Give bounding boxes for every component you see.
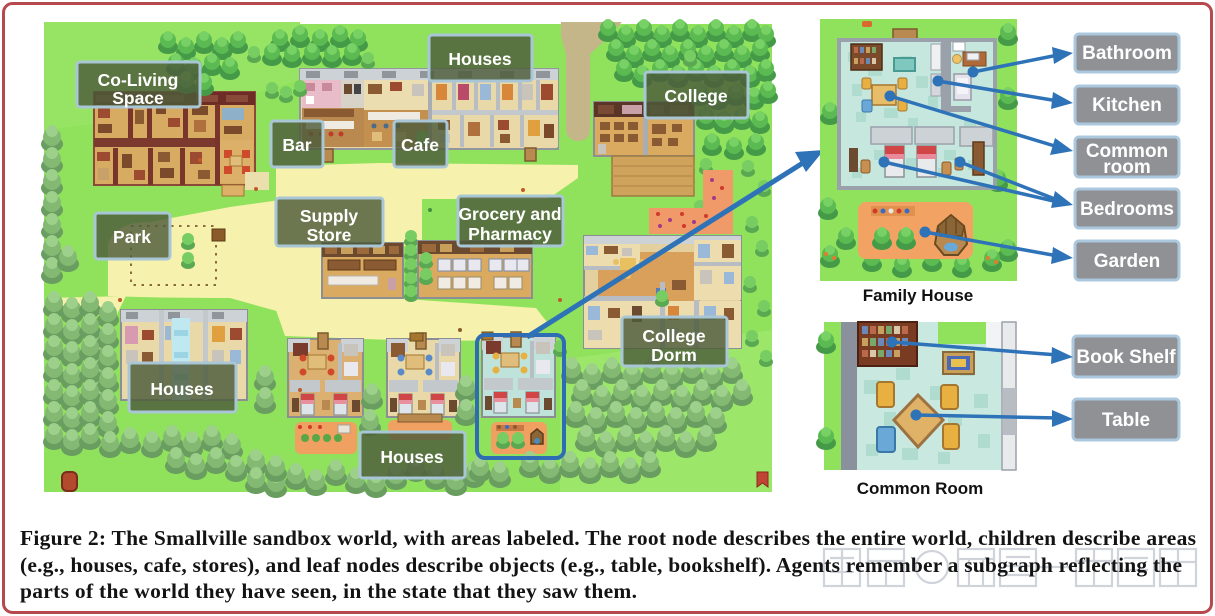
svg-text:Common Room: Common Room [857,479,984,498]
svg-text:College: College [642,326,705,346]
svg-text:parts of the world they have s: parts of the world they have seen, in th… [20,579,637,603]
svg-text:Figure 2: The Smallville sandb: Figure 2: The Smallville sandbox world, … [20,526,1196,550]
svg-text:Houses: Houses [380,447,443,467]
svg-text:Kitchen: Kitchen [1092,95,1162,116]
svg-text:Table: Table [1102,410,1150,431]
svg-text:College: College [664,86,727,106]
svg-text:Co-Living: Co-Living [98,70,179,90]
svg-text:Supply: Supply [300,206,359,226]
svg-text:Park: Park [113,227,151,247]
svg-text:room: room [1103,157,1151,178]
svg-text:Bar: Bar [282,135,311,155]
svg-text:(e.g., houses, cafe, stores),: (e.g., houses, cafe, stores), and leaf n… [20,553,1182,577]
svg-text:Book Shelf: Book Shelf [1076,347,1176,368]
svg-text:Family House: Family House [863,286,974,305]
svg-text:Dorm: Dorm [651,345,697,365]
svg-text:Bedrooms: Bedrooms [1080,199,1174,220]
svg-text:Bathroom: Bathroom [1082,43,1172,64]
svg-text:Houses: Houses [150,379,213,399]
svg-text:Pharmacy: Pharmacy [468,224,552,244]
svg-text:Garden: Garden [1094,251,1161,272]
svg-text:Cafe: Cafe [401,135,439,155]
svg-text:Space: Space [112,88,164,108]
svg-text:Store: Store [307,225,352,245]
svg-text:Grocery and: Grocery and [458,204,561,224]
svg-text:Houses: Houses [448,49,511,69]
